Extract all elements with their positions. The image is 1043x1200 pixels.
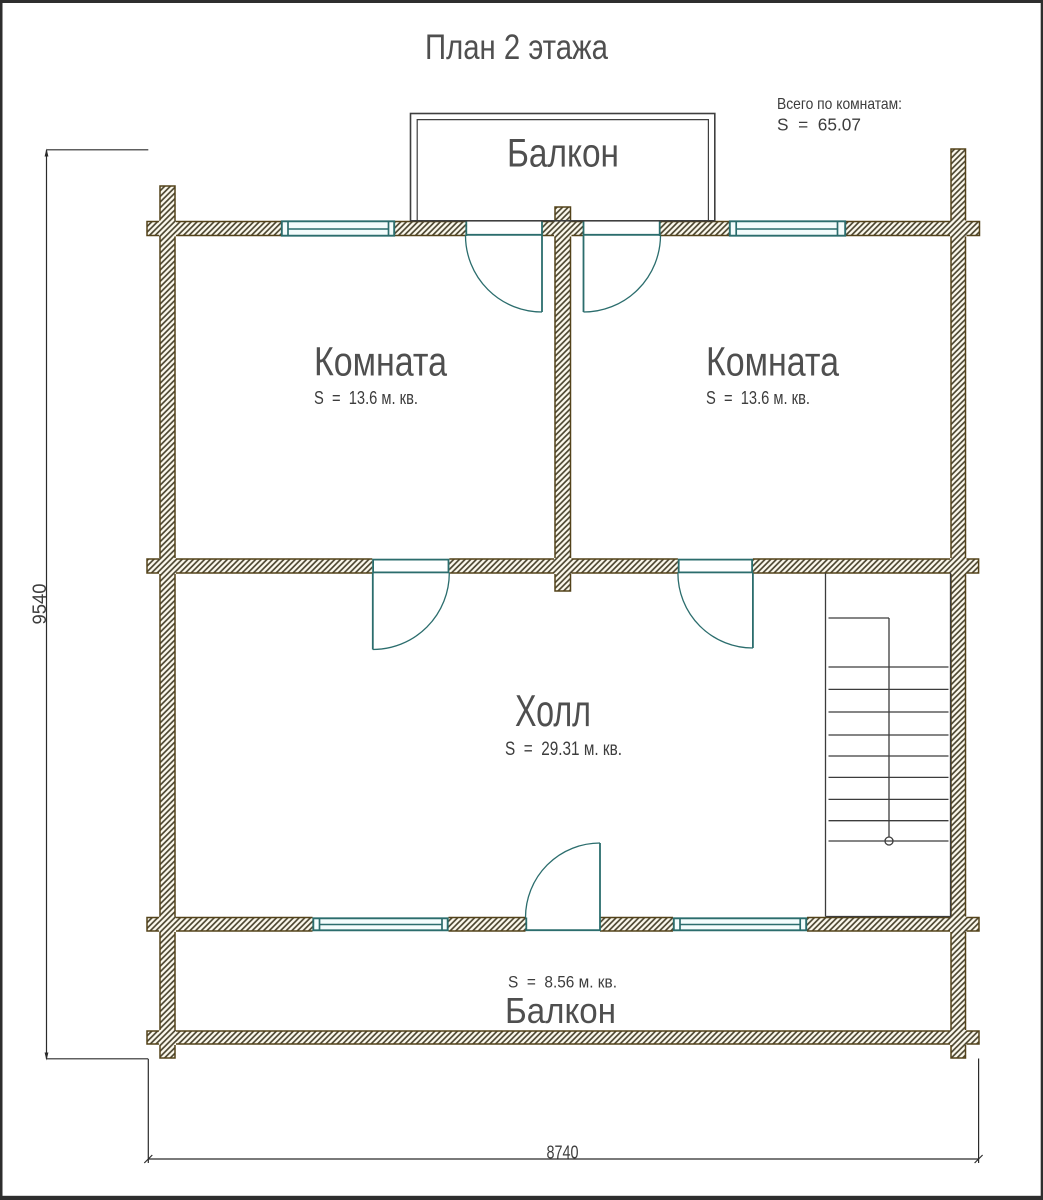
svg-text:S = 13.6 м. кв.: S = 13.6 м. кв. <box>706 388 810 408</box>
svg-text:9540: 9540 <box>30 584 51 625</box>
svg-text:S = 8.56 м. кв.: S = 8.56 м. кв. <box>508 973 617 991</box>
svg-text:S = 29.31 м. кв.: S = 29.31 м. кв. <box>505 739 622 760</box>
svg-text:Комната: Комната <box>706 339 839 385</box>
svg-text:S = 65.07: S = 65.07 <box>777 115 861 135</box>
svg-text:План 2 этажа: План 2 этажа <box>425 27 608 67</box>
svg-text:Холл: Холл <box>515 687 591 736</box>
svg-text:Комната: Комната <box>314 339 447 385</box>
svg-text:S = 13.6 м. кв.: S = 13.6 м. кв. <box>314 388 418 408</box>
svg-text:8740: 8740 <box>547 1142 579 1162</box>
svg-text:Балкон: Балкон <box>505 990 616 1031</box>
svg-text:Всего по комнатам:: Всего по комнатам: <box>777 96 902 113</box>
svg-text:Балкон: Балкон <box>507 131 619 176</box>
